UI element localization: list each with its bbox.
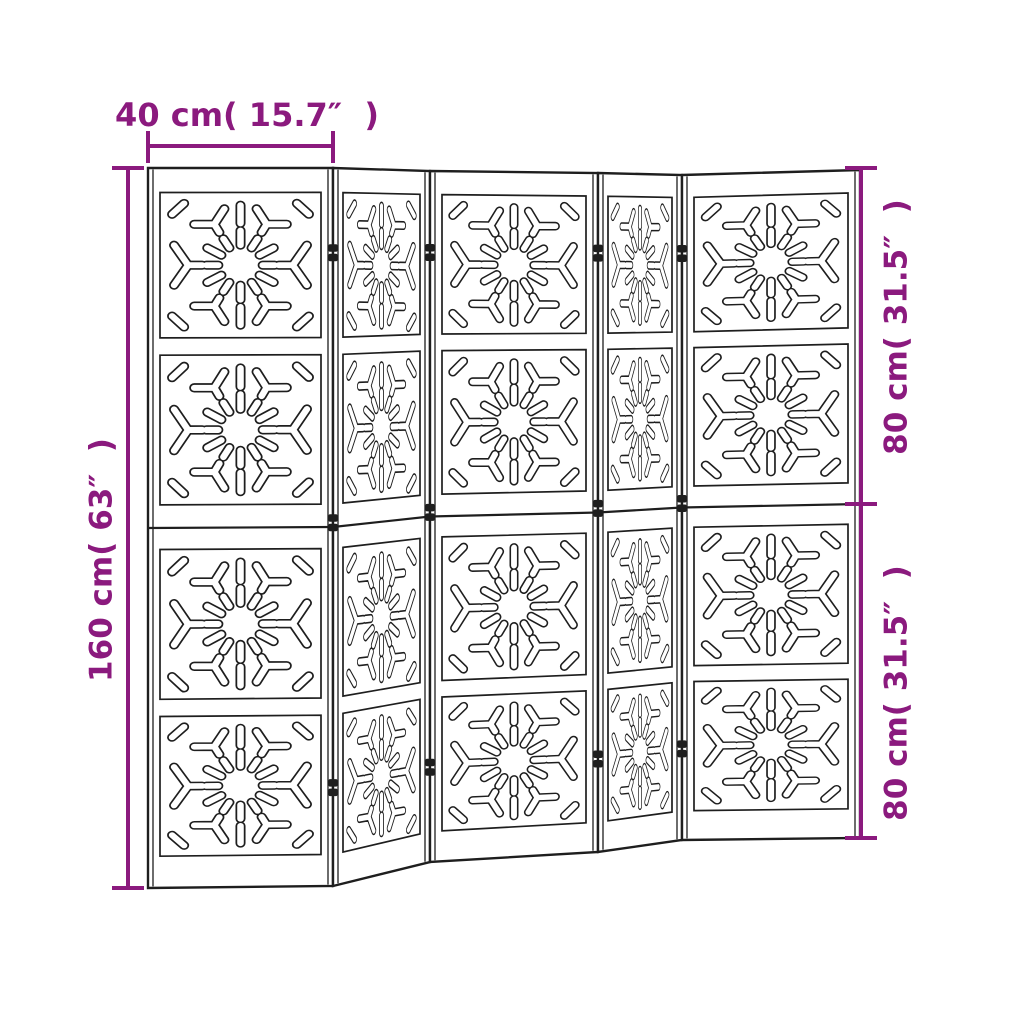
panel-3: [430, 171, 598, 862]
dimension-label-panel-width: 40 cm( 15.7″ ): [115, 99, 379, 131]
panel-4: [598, 173, 682, 852]
product-dimension-diagram: 40 cm( 15.7″ ) 160 cm( 63″ ) 80 cm( 31.5…: [0, 0, 1024, 1024]
panel-1: [148, 168, 333, 888]
dimension-label-total-height: 160 cm( 63″ ): [87, 438, 118, 682]
dimension-label-lower-half-height: 80 cm( 31.5″ ): [882, 565, 913, 821]
dimension-label-upper-half-height: 80 cm( 31.5″ ): [882, 199, 913, 455]
panel-5: [682, 170, 860, 840]
panel-mid-rail: [148, 527, 333, 528]
panel-2: [333, 168, 430, 886]
room-divider-drawing: [0, 0, 1024, 1024]
